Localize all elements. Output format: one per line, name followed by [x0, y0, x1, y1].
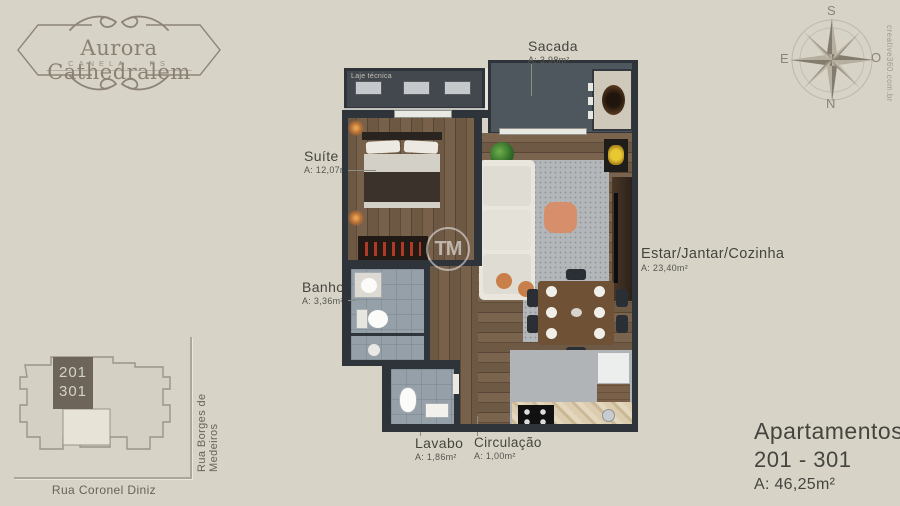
bathroom-vanity	[354, 272, 382, 298]
sink-icon	[425, 403, 449, 418]
compass-s-label: S	[827, 3, 836, 18]
pouf	[496, 273, 512, 289]
tv-icon	[614, 193, 618, 283]
plate	[546, 328, 557, 339]
room-sacada	[488, 60, 638, 135]
ac-unit	[444, 81, 471, 95]
room-laje-tecnica: Laje técnica	[344, 68, 485, 110]
dining-chair	[566, 269, 586, 280]
watermark-badge: TM	[426, 227, 470, 271]
leader-line	[531, 64, 532, 96]
room-area: A: 3,98m²	[528, 56, 578, 65]
plate	[594, 286, 605, 297]
label-banho: Banho A: 3,36m²	[302, 280, 344, 306]
dining-table	[538, 281, 614, 345]
suite-window	[394, 110, 452, 118]
flowers-icon	[608, 145, 624, 165]
wall	[424, 266, 430, 366]
room-lavabo	[388, 366, 458, 430]
shower-icon	[367, 343, 381, 357]
logo-flourish-top-icon	[64, 12, 174, 34]
apartment-info: Apartamentos 201 - 301 A: 46,25m²	[754, 420, 894, 493]
fire-pit-icon	[602, 85, 625, 115]
entry-door	[453, 374, 459, 394]
plate	[546, 286, 557, 297]
bowl	[571, 308, 582, 317]
wall	[342, 110, 348, 366]
sofa-cushion	[483, 210, 531, 250]
sofa-cushion	[483, 166, 531, 206]
apartments-range: 201 - 301	[754, 449, 894, 471]
apartments-title: Apartamentos	[754, 420, 894, 443]
sliding-glass-door	[499, 128, 587, 135]
unit-number-top: 201	[59, 364, 87, 383]
sideboard	[604, 139, 628, 172]
bed-runner	[364, 172, 440, 202]
toilet-tank	[356, 309, 368, 329]
room-estar-floor	[478, 133, 632, 432]
compass-e-label: E	[780, 51, 789, 66]
site-plan-icon	[10, 350, 190, 465]
room-banho	[348, 266, 428, 366]
floorplan-poster: Aurora Cathedralem CANELA · RS S E O N c…	[0, 0, 900, 506]
bed-headboard	[362, 132, 442, 140]
grill-shelf	[588, 83, 593, 91]
compass-o-label: O	[871, 50, 881, 65]
label-circulacao: Circulação A: 1,00m²	[474, 436, 542, 462]
room-name: Banho	[302, 280, 344, 295]
room-name: Circulação	[474, 436, 542, 450]
floor-plan: Laje técnica	[342, 60, 638, 438]
pillow	[366, 140, 401, 154]
wall	[382, 366, 388, 430]
ac-unit	[403, 81, 430, 95]
apartments-total-area: A: 46,25m²	[754, 477, 894, 493]
label-lavabo: Lavabo A: 1,86m²	[415, 436, 463, 462]
plate	[594, 307, 605, 318]
dresser	[358, 236, 428, 262]
street-name-horizontal: Rua Coronel Diniz	[24, 483, 184, 497]
room-area: A: 1,86m²	[415, 453, 463, 462]
room-name: Lavabo	[415, 436, 463, 451]
dining-chair	[616, 315, 628, 333]
credit-text: creative360.com.br	[885, 25, 894, 135]
laje-tecnica-label: Laje técnica	[351, 73, 392, 80]
logo-underline	[46, 70, 192, 71]
dining-chair	[616, 289, 628, 307]
wall	[632, 60, 638, 432]
grill-shelf	[588, 97, 593, 105]
compass-n-label: N	[826, 96, 835, 111]
tv-bench	[612, 177, 632, 301]
toilet-icon	[399, 387, 417, 413]
site-unit-highlight: 201 301	[53, 357, 93, 409]
grill-shelf	[588, 111, 593, 119]
plate	[594, 328, 605, 339]
room-name: Estar/Jantar/Cozinha	[641, 247, 784, 262]
label-sacada: Sacada A: 3,98m²	[528, 39, 578, 65]
room-area: A: 23,40m²	[641, 264, 784, 273]
street-line-horizontal	[14, 477, 192, 479]
toilet-icon	[368, 310, 388, 328]
label-estar: Estar/Jantar/Cozinha A: 23,40m²	[641, 247, 784, 274]
logo: Aurora Cathedralem CANELA · RS	[14, 14, 224, 94]
room-area: A: 1,00m²	[474, 452, 542, 461]
wall	[382, 424, 638, 432]
plate	[546, 307, 557, 318]
ac-unit	[355, 81, 382, 95]
wall	[474, 118, 482, 266]
street-name-vertical: Rua Borges de Medeiros	[196, 352, 220, 472]
churrasqueira	[592, 69, 633, 131]
fridge	[597, 352, 630, 384]
pillow	[404, 140, 439, 154]
kitchen-sink-icon	[602, 409, 615, 422]
coffee-table	[544, 202, 577, 233]
logo-subtitle: CANELA · RS	[14, 59, 224, 68]
shower-divider	[351, 333, 425, 336]
unit-number-bottom: 301	[59, 383, 87, 402]
room-name: Sacada	[528, 39, 578, 54]
sink-icon	[361, 278, 377, 293]
leader-line	[344, 170, 376, 171]
room-area: A: 3,36m²	[302, 297, 344, 306]
dresser-decor	[365, 242, 421, 256]
wall	[342, 360, 460, 366]
street-line-vertical	[190, 337, 192, 477]
lamp-glow	[348, 210, 364, 226]
laje-sacada-divider	[485, 68, 488, 110]
